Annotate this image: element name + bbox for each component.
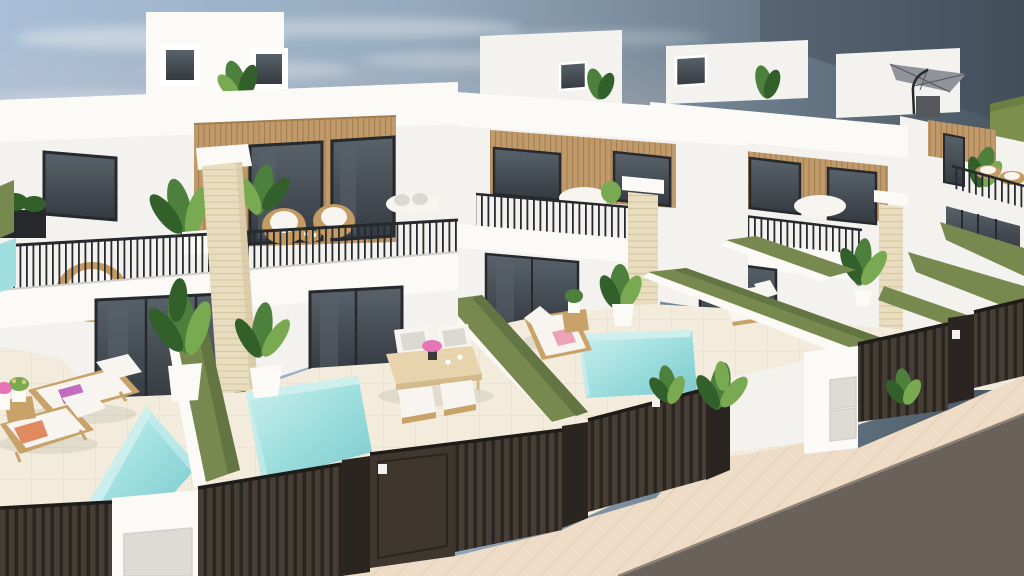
- hedge-wall: [0, 180, 14, 238]
- utility-pillar: [112, 490, 198, 576]
- solarium-window: [256, 54, 282, 84]
- solarium-window: [560, 62, 586, 90]
- villa-render-image: Row of modern white villas with private …: [0, 0, 1024, 576]
- fence-panel: [0, 502, 112, 576]
- window: [44, 152, 116, 220]
- roof-box: [916, 96, 940, 118]
- plant-pot: [250, 365, 282, 398]
- flowers: [422, 340, 442, 352]
- plant-pot: [168, 363, 202, 402]
- utility-pillar: [804, 346, 858, 454]
- entry-keypad: [652, 398, 660, 407]
- meter-door: [124, 528, 192, 576]
- gate-post: [342, 456, 370, 576]
- meter-door: [830, 408, 856, 441]
- terrace-plant: [601, 181, 621, 203]
- gate-post: [948, 314, 974, 404]
- window: [828, 168, 876, 224]
- outdoor-sofa: [386, 193, 438, 215]
- window: [750, 158, 800, 214]
- plant-pot: [612, 304, 634, 326]
- entry-keypad: [952, 330, 960, 339]
- rooftop-solarium: [146, 12, 288, 102]
- outdoor-sofa: [794, 195, 846, 217]
- solarium-window: [166, 50, 194, 80]
- render-canvas: Row of modern white villas with private …: [0, 0, 1024, 576]
- window: [494, 148, 560, 200]
- meter-door: [830, 377, 856, 409]
- plant-pot: [854, 290, 872, 306]
- entry-keypad: [378, 464, 387, 474]
- fence-panel: [974, 300, 1024, 388]
- gate-post: [562, 422, 588, 528]
- solarium-window: [676, 56, 706, 86]
- neighbour-pool: [0, 238, 16, 292]
